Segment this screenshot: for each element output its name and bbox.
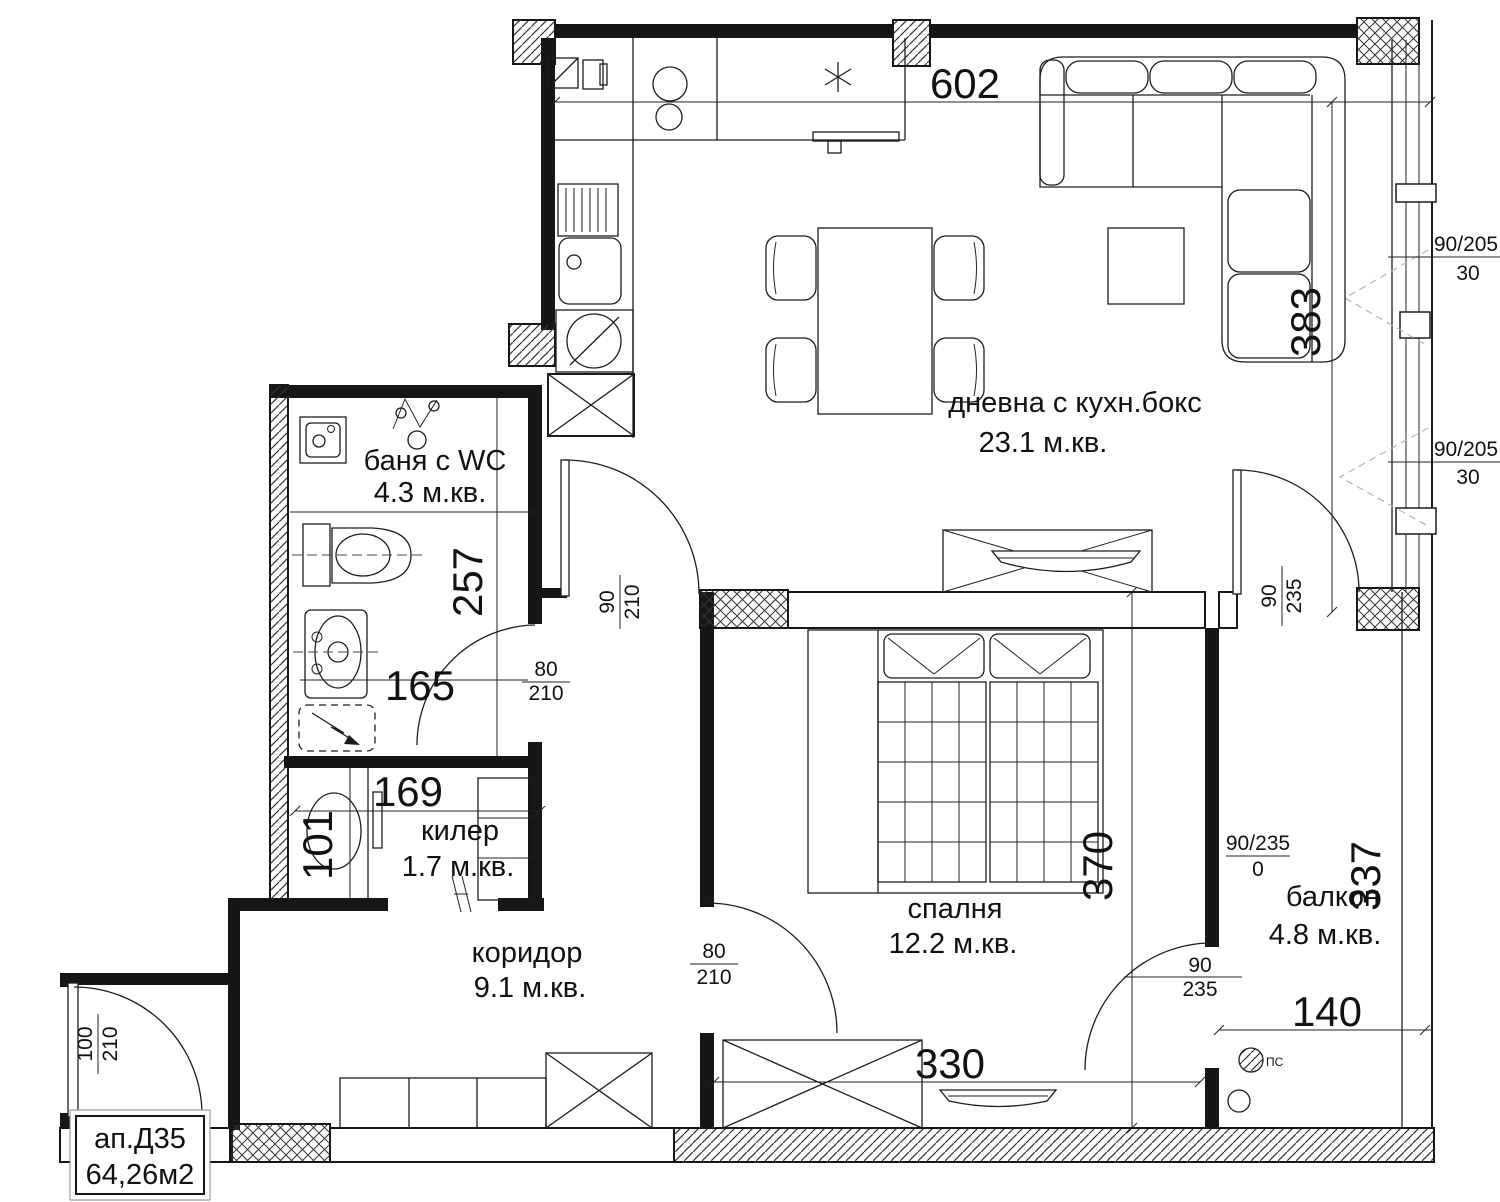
kitchen-counter xyxy=(548,38,905,438)
column-bedroom-left xyxy=(700,590,788,628)
balcony-fixtures: ПС xyxy=(1228,1048,1284,1112)
column-bottom-left xyxy=(230,1124,330,1162)
door-size-entry: 100 210 xyxy=(74,1014,122,1074)
sofa-armrest xyxy=(1040,60,1064,185)
column-mid-right xyxy=(1357,588,1419,630)
room-name-living: дневна с кухн.бокс xyxy=(948,387,1202,419)
apartment-area: 64,26м2 xyxy=(86,1159,195,1191)
door-width: 80 xyxy=(534,658,557,681)
bath-outer-wall xyxy=(270,385,288,908)
room-area-corridor: 9.1 м.кв. xyxy=(474,972,587,1004)
door-size-bath: 80 210 xyxy=(522,658,570,705)
bottom-wall-strip xyxy=(674,1128,1434,1162)
door-size-bedroom-balcony: 90 235 xyxy=(1182,954,1217,1001)
door-width: 80 xyxy=(702,940,725,963)
dim-bath-width: 165 xyxy=(385,662,455,709)
dim-balcony-height: 337 xyxy=(1342,841,1389,911)
door-height: 210 xyxy=(696,966,731,989)
tv-dresser xyxy=(943,530,1152,592)
living-balcony-door-leaf xyxy=(1233,470,1241,594)
door-height: 210 xyxy=(621,584,644,619)
pillow xyxy=(884,634,984,678)
room-labels: дневна с кухн.бокс 23.1 м.кв. баня с WC … xyxy=(364,387,1382,1004)
wardrobe xyxy=(723,1040,922,1128)
door-size-living: 90 210 xyxy=(596,575,644,629)
dim-bedroom-width: 330 xyxy=(915,1040,985,1087)
room-area-bath: 4.3 м.кв. xyxy=(374,477,487,509)
door-height: 210 xyxy=(528,682,563,705)
title-block: ап.Д35 64,26м2 xyxy=(70,1110,210,1200)
apartment-id: ап.Д35 xyxy=(94,1123,186,1155)
kitchen-sink-icon xyxy=(559,238,621,304)
column-top-right xyxy=(1357,18,1419,64)
dining-table xyxy=(818,228,932,414)
dim-living-height: 383 xyxy=(1282,287,1329,357)
room-name-closet: килер xyxy=(421,815,499,847)
window-size: 90/205 xyxy=(1434,438,1498,461)
door-width: 90 xyxy=(596,590,619,613)
window-size: 90/205 xyxy=(1434,233,1498,256)
floor-plan: ПС дневна с кухн.бокс 23.1 м.кв. баня с … xyxy=(0,0,1500,1202)
living-balcony-door-swing xyxy=(1237,470,1359,592)
dim-bath-height: 257 xyxy=(444,547,491,617)
door-height: 210 xyxy=(99,1026,122,1061)
dim-top-width: 602 xyxy=(930,60,1000,107)
door-height: 235 xyxy=(1182,978,1217,1001)
dish-drainer-icon xyxy=(558,184,618,236)
radiator xyxy=(940,1090,1056,1107)
door-size: 90/235 xyxy=(1226,832,1290,855)
door-width: 100 xyxy=(74,1026,97,1061)
bed xyxy=(808,630,1103,893)
door-size-living-balcony: 90 235 xyxy=(1258,566,1306,626)
room-name-bath: баня с WC xyxy=(364,445,507,477)
dimension-labels: 602 383 257 165 169 101 370 337 140 330 xyxy=(294,60,1389,1087)
column-top-mid xyxy=(893,20,930,66)
corridor-cabinet xyxy=(340,1053,652,1128)
room-area-balcony: 4.8 м.кв. xyxy=(1269,919,1382,951)
window-size-mid: 90/205 30 xyxy=(1434,438,1498,489)
column-kitchen xyxy=(509,324,555,366)
window-size-top: 90/205 30 xyxy=(1434,233,1498,285)
washbasin-icon xyxy=(305,610,367,698)
drain-icon xyxy=(1228,1090,1250,1112)
hob-star-icon xyxy=(825,62,851,92)
window-sill-height: 30 xyxy=(1456,466,1479,489)
room-name-corridor: коридор xyxy=(472,937,583,969)
ps-column-icon xyxy=(1239,1048,1263,1072)
walls xyxy=(60,18,1434,1162)
room-area-bedroom: 12.2 м.кв. xyxy=(889,928,1018,960)
dim-bedroom-height: 370 xyxy=(1074,831,1121,901)
door-width: 90 xyxy=(1188,954,1211,977)
window-sill-height: 30 xyxy=(1456,262,1479,285)
dim-closet-width: 169 xyxy=(373,768,443,815)
room-area-living: 23.1 м.кв. xyxy=(979,427,1108,459)
living-door-swing xyxy=(565,460,699,594)
window-mullion xyxy=(1396,184,1436,202)
threshold-height: 0 xyxy=(1252,858,1264,881)
window-mullion xyxy=(1400,312,1430,338)
door-width: 90 xyxy=(1258,584,1281,607)
cooktop-burner-icon xyxy=(653,67,687,101)
living-door-leaf xyxy=(561,460,569,596)
cooktop-burner-icon xyxy=(656,104,682,130)
door-size-bedroom: 80 210 xyxy=(690,940,738,989)
dim-balcony-width: 140 xyxy=(1292,988,1362,1035)
sofa-cushion xyxy=(1066,61,1148,93)
room-name-bedroom: спалня xyxy=(908,893,1003,925)
window-wall xyxy=(1219,20,1436,1128)
coffee-table xyxy=(1108,228,1184,304)
tv-icon xyxy=(992,551,1140,572)
door-height: 235 xyxy=(1283,578,1306,613)
ps-label: ПС xyxy=(1266,1055,1284,1069)
sofa-cushion xyxy=(1150,61,1232,93)
small-sink-icon xyxy=(300,417,346,463)
pillow xyxy=(990,634,1090,678)
sofa-cushion xyxy=(1228,190,1310,272)
sofa-cushion xyxy=(1234,61,1316,93)
dim-closet-height: 101 xyxy=(294,810,341,880)
room-area-closet: 1.7 м.кв. xyxy=(402,851,515,883)
